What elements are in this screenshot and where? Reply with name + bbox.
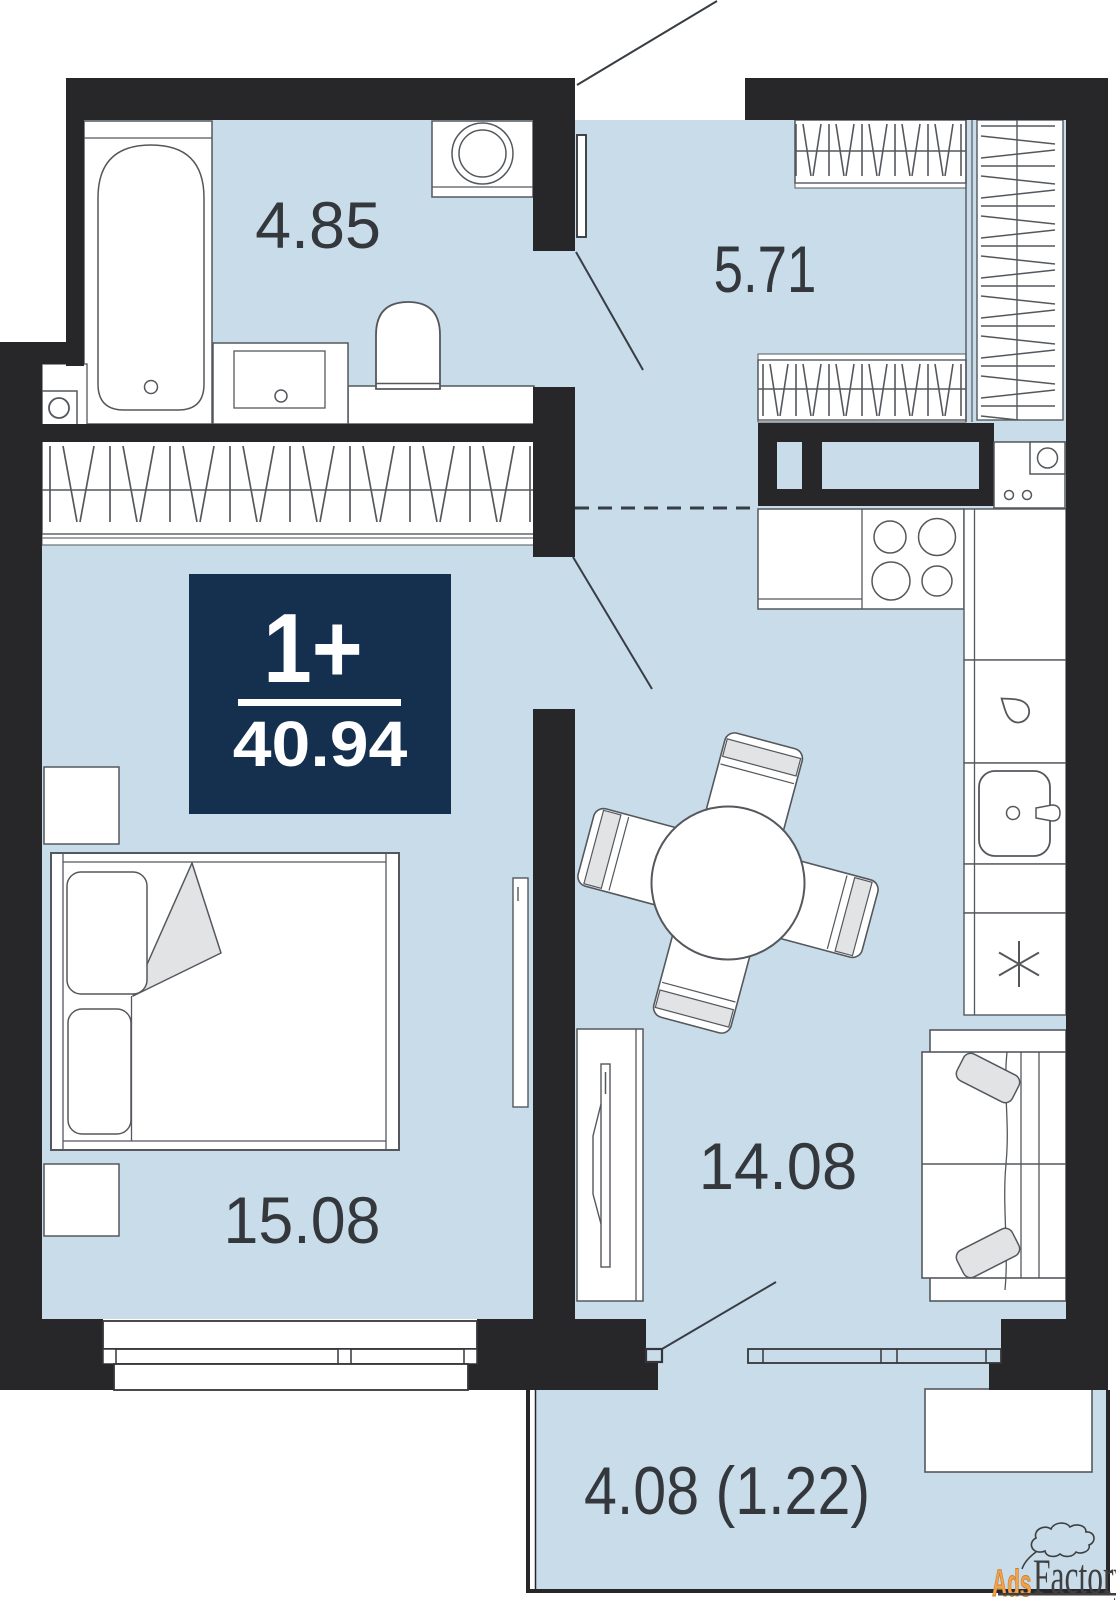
svg-text:40.94: 40.94	[233, 709, 408, 781]
svg-text:1+: 1+	[263, 593, 362, 703]
svg-text:14.08: 14.08	[699, 1129, 858, 1203]
svg-text:4.85: 4.85	[255, 188, 381, 262]
svg-text:5.71: 5.71	[714, 232, 817, 306]
svg-text:15.08: 15.08	[224, 1184, 381, 1258]
svg-text:Factory: Factory	[1033, 1550, 1116, 1600]
svg-text:4.08 (1.22): 4.08 (1.22)	[584, 1452, 870, 1529]
